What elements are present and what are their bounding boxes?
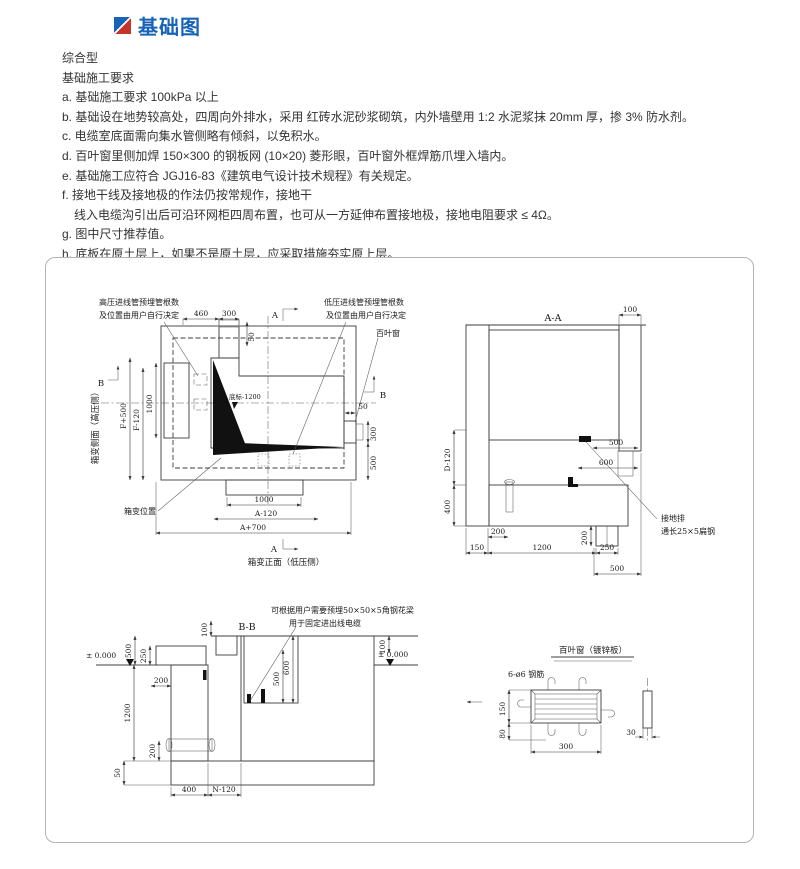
plan-dim-a700: A+700 <box>239 523 266 532</box>
plan-marker-b-left: B <box>98 379 104 389</box>
louver-title: 百叶窗（镀锌板） <box>559 645 627 656</box>
note-line-b: b. 基础设在地势较高处，四周向外排水，采用 红砖水泥砂浆砌筑，内外墙壁用 1:… <box>62 108 752 128</box>
bb-dim-500: 500 <box>124 644 133 659</box>
bb-dim-100-top: 100 <box>200 623 209 638</box>
foundation-drawing: 高压进线管预埋管根数 及位置由用户自行决定 低压进线管预埋管根数 及位置由用户自… <box>46 258 754 842</box>
louver-dim-30: 30 <box>626 728 636 737</box>
plan-dim-1000-left: 1000 <box>145 394 154 413</box>
aa-dim-500b: 500 <box>610 564 625 573</box>
plan-dim-50-right: 50 <box>358 402 368 411</box>
bb-title: B-B <box>238 622 255 633</box>
bb-dim-1200: 1200 <box>123 703 132 722</box>
aa-dim-200b: 200 <box>580 531 589 546</box>
note-line-c: c. 电缆室底面需向集水管侧略有倾斜，以免积水。 <box>62 127 752 147</box>
aa-dim-200a: 200 <box>491 527 506 536</box>
plan-dim-50-top: 50 <box>247 332 256 342</box>
bb-note-1: 可根据用户需要预埋50×50×5角钢花梁 <box>271 605 414 615</box>
drawing-panel: 高压进线管预埋管根数 及位置由用户自行决定 低压进线管预埋管根数 及位置由用户自… <box>45 257 754 843</box>
plan-view: 高压进线管预埋管根数 及位置由用户自行决定 低压进线管预埋管根数 及位置由用户自… <box>90 297 406 568</box>
note-line-a: a. 基础施工要求 100kPa 以上 <box>62 88 752 108</box>
bb-dim-500-opening: 500 <box>272 672 281 687</box>
section-aa: A-A 100 500 600 D-120 400 200 200 150 12… <box>443 305 715 576</box>
plan-dim-f120: F-120 <box>132 409 141 431</box>
bb-dim-100-right: 100 <box>378 640 387 655</box>
plan-side-label: 箱变侧面（高压侧） <box>90 388 101 465</box>
plan-hv-note-1: 高压进线管预埋管根数 <box>99 297 179 307</box>
type-label: 综合型 <box>62 49 752 69</box>
aa-earth-label-2: 通长25×5扁钢 <box>661 526 715 536</box>
plan-marker-a-top: A <box>271 311 279 321</box>
aa-dim-1200: 1200 <box>532 543 551 552</box>
plan-caption: 箱变正面（低压侧） <box>248 557 325 568</box>
aa-earth-label-1: 接地排 <box>661 513 685 523</box>
louver-rebar-label: 6-ø6 钢筋 <box>508 669 544 679</box>
plan-lv-note-2: 及位置由用户自行决定 <box>326 310 406 320</box>
section-bb: B-B 可根据用户需要预埋50×50×5角钢花梁 用于固定进出线电缆 ± 0.0… <box>86 605 418 797</box>
bb-dim-200-left: 200 <box>154 676 169 685</box>
plan-dim-300-right: 300 <box>369 427 378 442</box>
plan-hv-note-2: 及位置由用户自行决定 <box>99 310 179 320</box>
louver-dim-300: 300 <box>559 742 574 751</box>
aa-title: A-A <box>544 313 562 324</box>
notes-heading: 基础施工要求 <box>62 69 752 89</box>
plan-marker-b-right: B <box>380 391 386 401</box>
plan-dim-300: 300 <box>222 309 237 318</box>
bb-dim-50: 50 <box>113 768 122 778</box>
bb-dim-n120: N-120 <box>212 785 236 794</box>
aa-dim-d120: D-120 <box>443 448 452 471</box>
aa-dim-600: 600 <box>599 458 614 467</box>
plan-marker-a-bottom: A <box>270 545 278 555</box>
note-line-f2: 线入电缆沟引出后可沿环网柜四周布置，也可从一方延伸布置接地极，接地电阻要求 ≤ … <box>62 206 752 226</box>
bb-dim-250: 250 <box>139 649 148 664</box>
plan-dim-460: 460 <box>194 309 209 318</box>
note-line-g: g. 图中尺寸推荐值。 <box>62 225 752 245</box>
plan-level-label: 底标-1200 <box>229 392 261 401</box>
plan-dim-a120: A-120 <box>254 509 277 518</box>
bb-dim-200-pipe: 200 <box>148 744 157 759</box>
louver-detail: 百叶窗（镀锌板） 6-ø6 钢筋 150 80 300 30 <box>467 645 660 754</box>
aa-dim-400: 400 <box>443 500 452 515</box>
aa-dim-500: 500 <box>609 438 624 447</box>
plan-dim-1000-bottom: 1000 <box>254 495 273 504</box>
note-line-f: f. 接地干线及接地极的作法仍按常规作，接地干 <box>62 186 752 206</box>
bb-level-left: ± 0.000 <box>86 651 116 660</box>
bb-note-2: 用于固定进出线电缆 <box>289 618 361 628</box>
plan-louver-label: 百叶窗 <box>376 328 400 338</box>
construction-notes: 综合型 基础施工要求 a. 基础施工要求 100kPa 以上 b. 基础设在地势… <box>62 49 752 265</box>
aa-dim-150: 150 <box>470 543 485 552</box>
plan-dim-f500: F+500 <box>119 403 128 429</box>
plan-lv-note-1: 低压进线管预埋管根数 <box>324 297 404 307</box>
page-header: 基础图 <box>114 11 201 40</box>
louver-dim-150: 150 <box>498 702 507 717</box>
plan-dim-500-right: 500 <box>369 456 378 471</box>
plan-position-label: 箱变位置 <box>124 506 156 516</box>
aa-dim-250: 250 <box>600 543 615 552</box>
note-line-d: d. 百叶窗里侧加焊 150×300 的钢板网 (10×20) 菱形眼，百叶窗外… <box>62 147 752 167</box>
bb-dim-400: 400 <box>182 785 197 794</box>
page-title: 基础图 <box>138 11 201 40</box>
louver-dim-80: 80 <box>498 729 507 739</box>
section-marker-icon <box>114 17 131 34</box>
aa-dim-100: 100 <box>623 305 638 314</box>
note-line-e: e. 基础施工应符合 JGJ16-83《建筑电气设计技术规程》有关规定。 <box>62 167 752 187</box>
bb-dim-600: 600 <box>282 661 291 676</box>
